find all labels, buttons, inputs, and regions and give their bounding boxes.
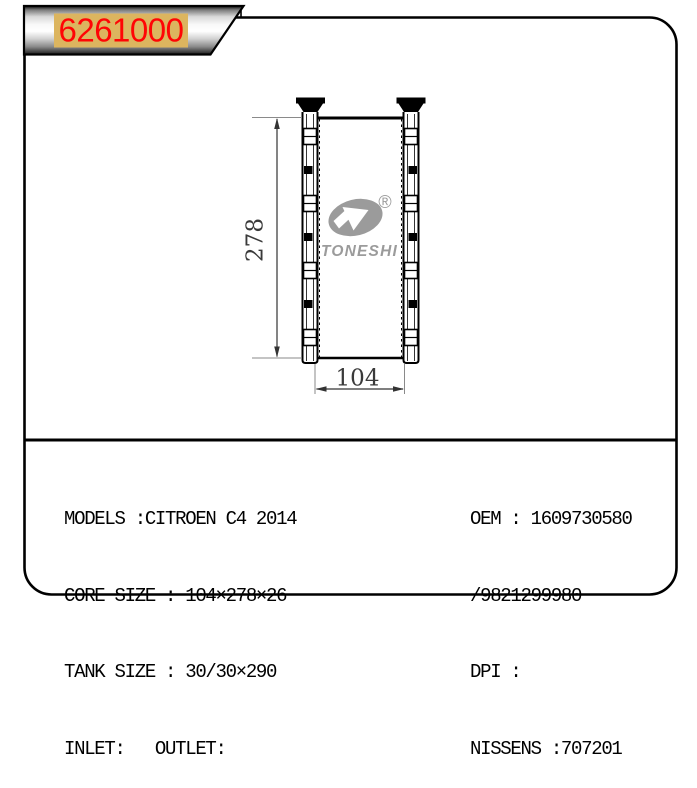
width-dimension-line: 104 [315, 364, 405, 394]
spec-line-models: MODELS :CITROEN C4 2014 [64, 507, 296, 533]
left-mounting-bracket [296, 98, 325, 113]
spec-line-oem-alt: /9821299980 [470, 584, 632, 610]
registered-trademark: ® [378, 192, 391, 212]
right-mounting-bracket [397, 98, 426, 113]
left-tank-column [303, 112, 318, 363]
width-dimension-label: 104 [336, 366, 380, 392]
specs-panel-right: OEM : 1609730580 /9821299980 DPI : NISSE… [470, 456, 632, 788]
right-tank-column [404, 112, 419, 363]
height-dimension-line: 278 [243, 118, 303, 359]
spec-line-core-size: CORE SIZE : 104×278×26 [64, 584, 296, 610]
watermark-brand-text: TONESHI [321, 243, 398, 260]
part-number-banner: 6261000 [24, 6, 244, 55]
watermark-logo: ® TONESHI [321, 192, 398, 260]
part-number-text: 6261000 [59, 12, 184, 49]
spec-line-inlet-outlet: INLET: OUTLET: [64, 737, 296, 763]
spec-line-dpi: DPI : [470, 660, 632, 686]
spec-line-nissens: NISSENS :707201 [470, 737, 632, 763]
height-dimension-label: 278 [243, 218, 269, 262]
specs-panel-left: MODELS :CITROEN C4 2014 CORE SIZE : 104×… [64, 456, 296, 788]
spec-line-tank-size: TANK SIZE : 30/30×290 [64, 660, 296, 686]
spec-line-oem: OEM : 1609730580 [470, 507, 632, 533]
